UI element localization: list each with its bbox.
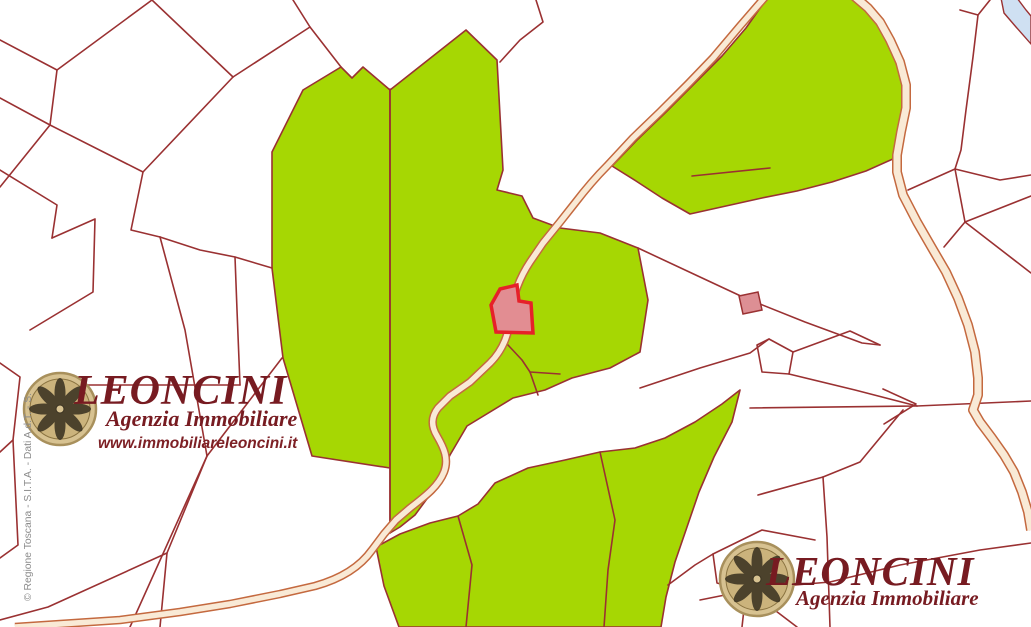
- cadastral-map-screenshot: LEONCINI Agenzia Immobiliare www.immobil…: [0, 0, 1031, 627]
- secondary-highlighted-parcel[interactable]: [739, 292, 762, 314]
- attribution-text: © Regione Toscana - S.I.T.A. - Dati A.d.…: [23, 393, 34, 601]
- map-canvas[interactable]: LEONCINI Agenzia Immobiliare www.immobil…: [0, 0, 1031, 627]
- leoncini-logo-right: LEONCINI Agenzia Immobiliare: [720, 542, 979, 616]
- leoncini-logo-left: LEONCINI Agenzia Immobiliare www.immobil…: [24, 368, 298, 452]
- tagline-text-left: Agenzia Immobiliare: [104, 406, 298, 431]
- website-text: www.immobiliareleoncini.it: [98, 435, 298, 452]
- tagline-text-right: Agenzia Immobiliare: [794, 586, 979, 610]
